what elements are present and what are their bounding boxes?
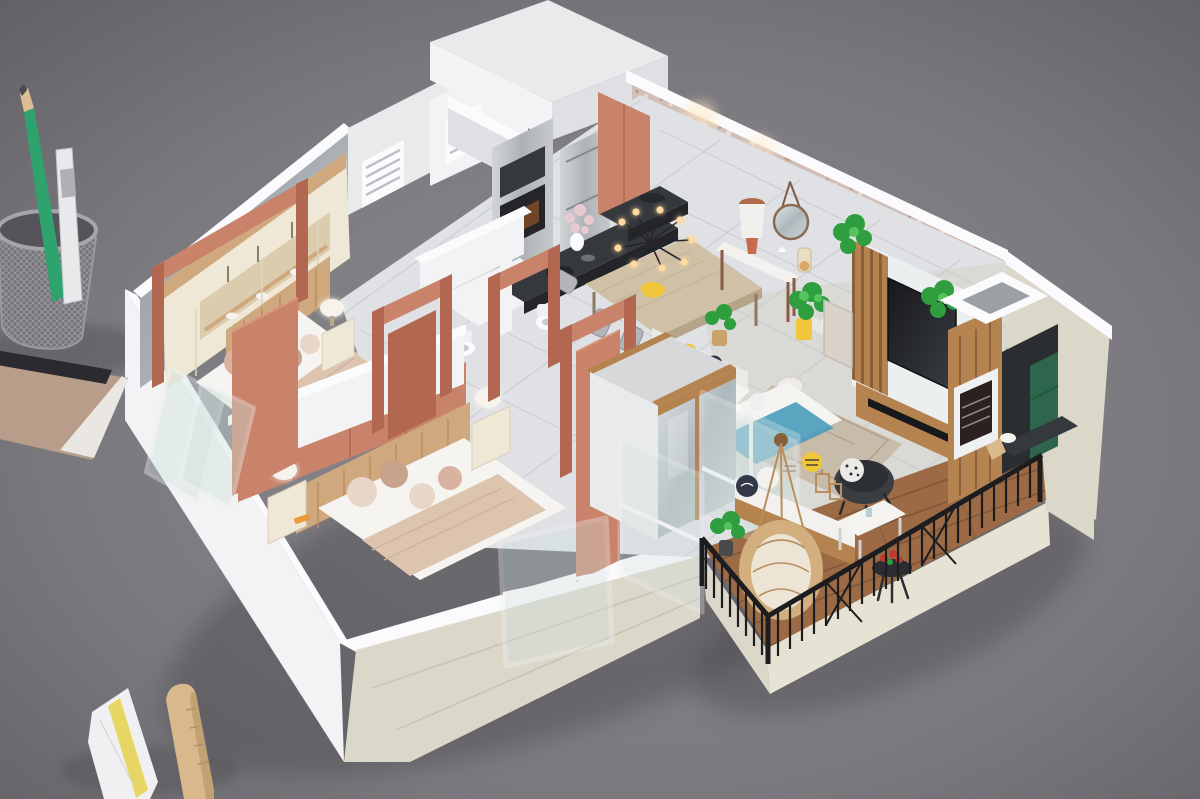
round-tray [639,193,665,203]
bedside-lamp [320,299,344,317]
pen-clip [60,168,76,198]
cup [866,508,872,517]
spotted-cushion [840,458,864,482]
pot [581,255,595,262]
kettle [1000,433,1016,443]
script-pillow-dark [736,475,758,497]
script-pillow-light [757,467,779,489]
floor-plan-render [0,0,1200,799]
patterned-yellow-pillow [802,452,822,472]
screenshot-canvas [0,0,1200,799]
wood-slat-panel [852,240,888,396]
